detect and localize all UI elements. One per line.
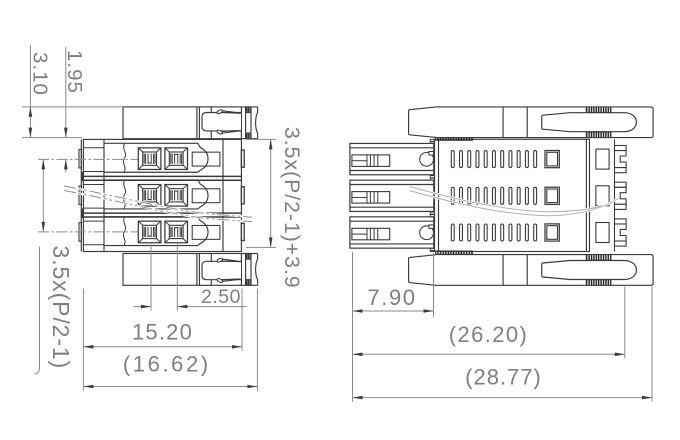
svg-text:15.20: 15.20 bbox=[132, 320, 193, 345]
svg-text:3.5x(P/2-1): 3.5x(P/2-1) bbox=[48, 246, 74, 370]
svg-text:2.50: 2.50 bbox=[201, 286, 241, 308]
svg-text:(16.62): (16.62) bbox=[123, 352, 211, 377]
svg-text:7.90: 7.90 bbox=[367, 285, 416, 310]
svg-text:(28.77): (28.77) bbox=[465, 365, 542, 390]
svg-text:3.10: 3.10 bbox=[29, 52, 52, 96]
svg-text:1.95: 1.95 bbox=[63, 50, 86, 94]
svg-text:3.5x(P/2-1)+3.9: 3.5x(P/2-1)+3.9 bbox=[280, 127, 303, 289]
svg-text:(26.20): (26.20) bbox=[449, 322, 529, 347]
